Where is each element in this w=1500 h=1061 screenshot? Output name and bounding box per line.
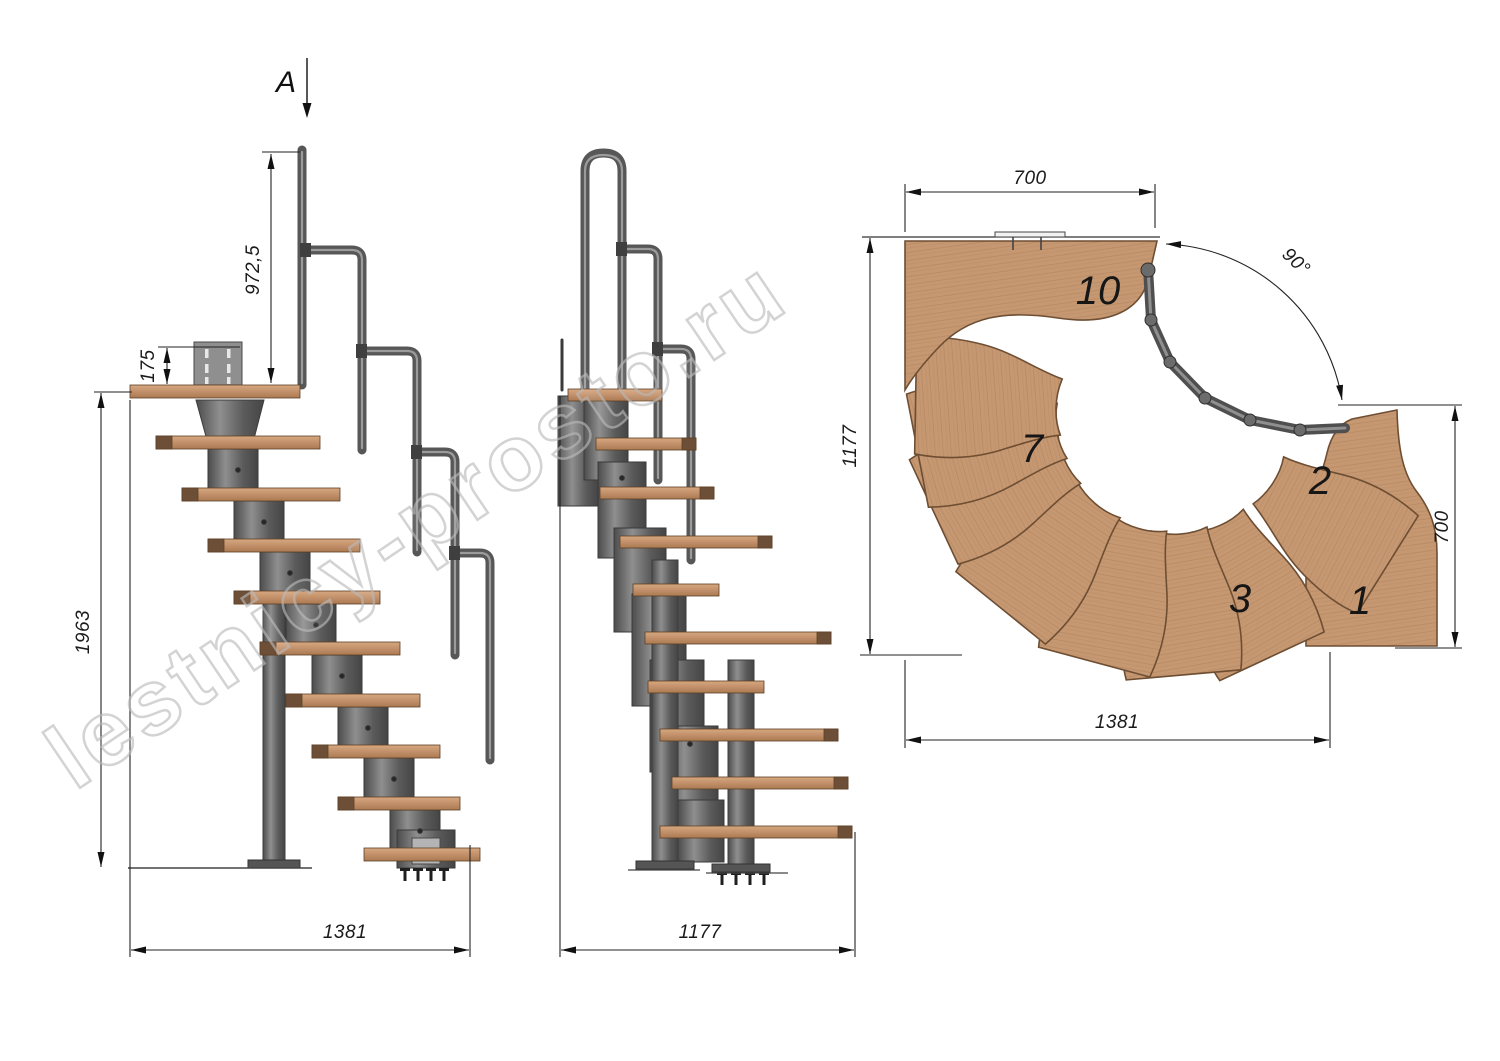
section-arrow: A xyxy=(274,58,312,118)
dim-plan-bottom-length: 1381 xyxy=(1095,712,1139,733)
front-elevation-view: 1177 xyxy=(558,153,855,957)
tread-label-10: 10 xyxy=(1076,269,1121,313)
dim-side-length: 1381 xyxy=(323,922,367,943)
tread-label-2: 2 xyxy=(1308,459,1331,503)
dim-plan-angle: 90° xyxy=(1278,244,1314,280)
plan-handrail xyxy=(1141,263,1345,436)
dim-plan-right-depth: 700 xyxy=(1432,510,1453,543)
dim-rail-height: 972,5 xyxy=(243,245,264,295)
front-modules xyxy=(558,396,724,862)
tread-label-3: 3 xyxy=(1229,577,1251,621)
dim-plate-height: 175 xyxy=(138,349,159,382)
dim-total-height: 1963 xyxy=(73,610,94,654)
section-label: A xyxy=(274,66,296,99)
technical-drawing-canvas: A xyxy=(0,0,1500,1061)
tread-label-7: 7 xyxy=(1021,427,1045,471)
staircase-drawing: A xyxy=(0,0,1500,1061)
dim-plan-top-width: 700 xyxy=(1013,168,1046,189)
plan-view: 10 7 2 3 1 700 1177 90° 700 1381 xyxy=(840,168,1462,748)
side-anchor-bolts xyxy=(400,868,449,881)
dim-plan-left-depth: 1177 xyxy=(840,424,861,468)
dim-front-width: 1177 xyxy=(679,922,723,943)
side-elevation-view: A xyxy=(73,58,490,957)
section-arrowhead-icon xyxy=(303,103,312,118)
tread-label-1: 1 xyxy=(1349,579,1371,623)
